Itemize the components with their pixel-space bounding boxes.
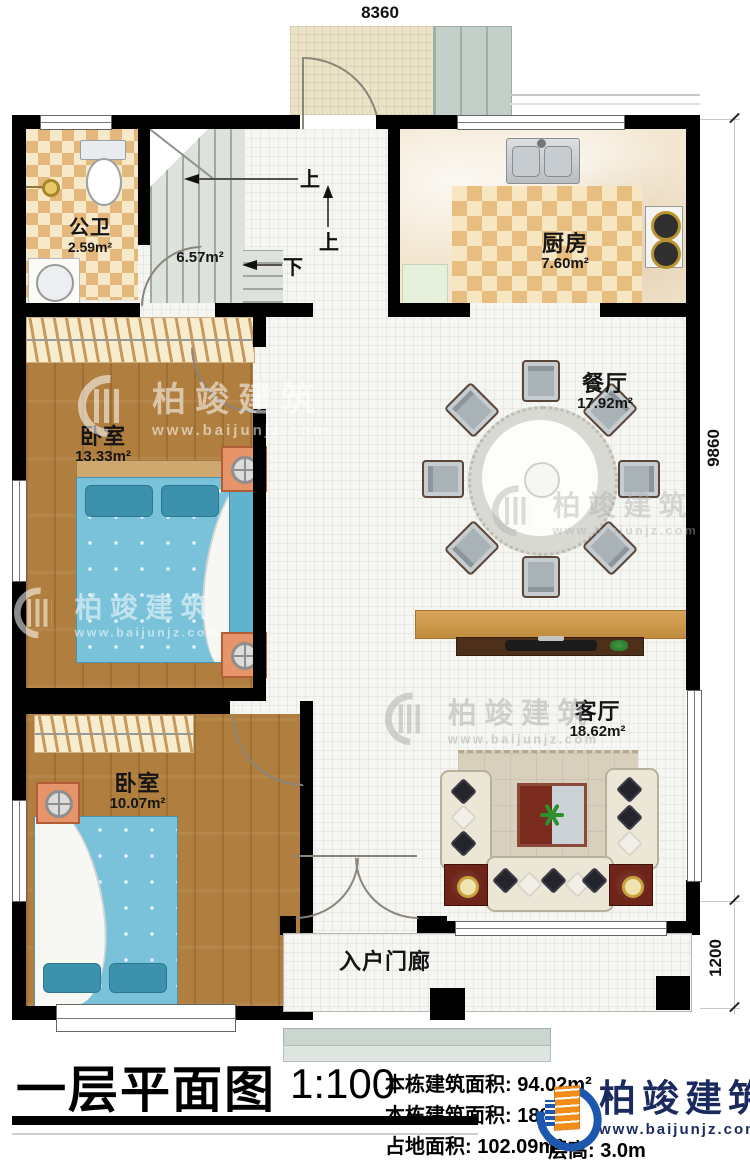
sofa-cushion	[616, 804, 643, 831]
living-label: 客厅 18.62m²	[535, 700, 660, 740]
sink-basin-right	[544, 146, 572, 177]
sink-basin-left	[512, 146, 540, 177]
dining-chair	[422, 460, 464, 498]
bedroom-upper-window	[12, 480, 27, 582]
end-table	[444, 864, 488, 906]
wall	[686, 129, 700, 690]
wall	[300, 701, 313, 714]
wall-kitchen	[388, 129, 400, 310]
closet-lower	[34, 715, 194, 753]
sofa-cushion	[540, 867, 567, 894]
wall	[253, 409, 266, 688]
end-table-lamp	[622, 876, 644, 898]
sofa-left	[440, 770, 492, 870]
bedroom-lower-label: 卧室 10.07m²	[80, 772, 195, 812]
sheet-title: 一层平面图	[16, 1050, 276, 1122]
up-guide-line	[198, 178, 298, 180]
sink-faucet	[537, 139, 546, 148]
tv-partition	[415, 610, 687, 639]
kitchen-board	[402, 264, 448, 306]
sofa-cushion	[450, 804, 477, 831]
bathroom-sink-basin	[36, 264, 74, 302]
wall	[12, 1006, 60, 1020]
dimension-top: 8360	[340, 3, 420, 23]
tv	[505, 640, 597, 651]
stairs-up-label-2: 上	[319, 226, 339, 255]
wall	[253, 317, 266, 347]
dimension-right: 9860	[704, 418, 724, 478]
living-bottom-window	[455, 921, 667, 936]
end-table-lamp	[457, 876, 479, 898]
wall	[388, 303, 470, 317]
brand-logo-icon	[537, 1080, 593, 1142]
stair-flight-lower	[243, 250, 283, 303]
pillow	[161, 485, 219, 517]
floor-plan-sheet: 8360 上 上 下 6.57m²	[0, 0, 750, 1165]
toilet-tank	[80, 140, 126, 160]
sofa-cushion	[450, 778, 477, 805]
wall	[623, 115, 700, 129]
end-table	[609, 864, 653, 906]
up-arrowhead	[184, 174, 199, 184]
up-arrowhead-vertical	[323, 185, 333, 198]
bathroom-label: 公卫 2.59m²	[38, 218, 142, 255]
kitchen-label: 厨房 7.60m²	[505, 232, 625, 272]
nightstand	[36, 782, 80, 824]
brand-url: www.baijunjz.com	[599, 1121, 750, 1138]
sofa-cushion	[616, 776, 643, 803]
stat-building-area-2: 本栋建筑面积: 188.	[385, 1099, 556, 1128]
sofa-cushion	[450, 830, 477, 857]
living-window	[687, 690, 702, 882]
wall	[12, 701, 230, 714]
down-arrowhead	[242, 260, 257, 270]
wall	[12, 303, 140, 317]
stairs-up-label: 上	[300, 163, 320, 192]
tv-stand	[538, 636, 564, 641]
rear-steps	[433, 26, 512, 117]
pillow	[109, 963, 167, 993]
pillow	[43, 963, 101, 993]
rear-door-leaf	[302, 57, 304, 130]
dining-chair	[522, 556, 560, 598]
brand-logo: 柏竣建筑 www.baijunjz.com	[537, 1080, 750, 1142]
dimension-porch: 1200	[706, 928, 726, 988]
stove-burner-2	[651, 239, 681, 269]
wall	[376, 115, 457, 129]
porch-column	[656, 976, 690, 1010]
down-guide-line	[256, 264, 282, 266]
porch-column	[430, 988, 465, 1020]
brand-name: 柏竣建筑	[599, 1080, 750, 1117]
sofa-main	[486, 856, 614, 912]
wall	[12, 900, 26, 1020]
sofa-right	[605, 768, 659, 870]
bed-lower	[34, 816, 178, 1008]
bay-window	[56, 1004, 236, 1032]
dining-table-center	[524, 462, 560, 498]
porch-label: 入户门廊	[320, 950, 450, 974]
bedroom-lower-window	[12, 800, 27, 902]
coffee-table	[517, 783, 587, 847]
pillow	[85, 485, 153, 517]
sofa-cushion	[492, 867, 519, 894]
sheet-scale: 1:100	[290, 1060, 395, 1108]
eave-line	[510, 94, 700, 96]
wall	[110, 115, 300, 129]
wall	[12, 688, 266, 701]
up-arrow-line	[327, 197, 329, 227]
stairs-down-label: 下	[283, 251, 303, 280]
sofa-cushion	[516, 871, 543, 898]
dimension-line	[734, 120, 735, 1015]
bedroom-upper-label: 卧室 13.33m²	[48, 425, 158, 465]
wall	[600, 303, 700, 317]
cabinet-plant	[610, 640, 628, 651]
wall	[215, 303, 313, 317]
kitchen-window	[457, 115, 625, 130]
stove-burner-1	[651, 211, 681, 241]
towel-knob	[42, 179, 60, 197]
eave-line	[510, 103, 700, 105]
sofa-cushion	[616, 830, 643, 857]
nightstand-lamp	[45, 790, 73, 818]
dining-label: 餐厅 17.92m²	[540, 372, 670, 412]
dining-chair	[618, 460, 660, 498]
toilet-bowl	[86, 158, 122, 206]
bathroom-window	[40, 115, 112, 130]
wall	[12, 115, 40, 129]
